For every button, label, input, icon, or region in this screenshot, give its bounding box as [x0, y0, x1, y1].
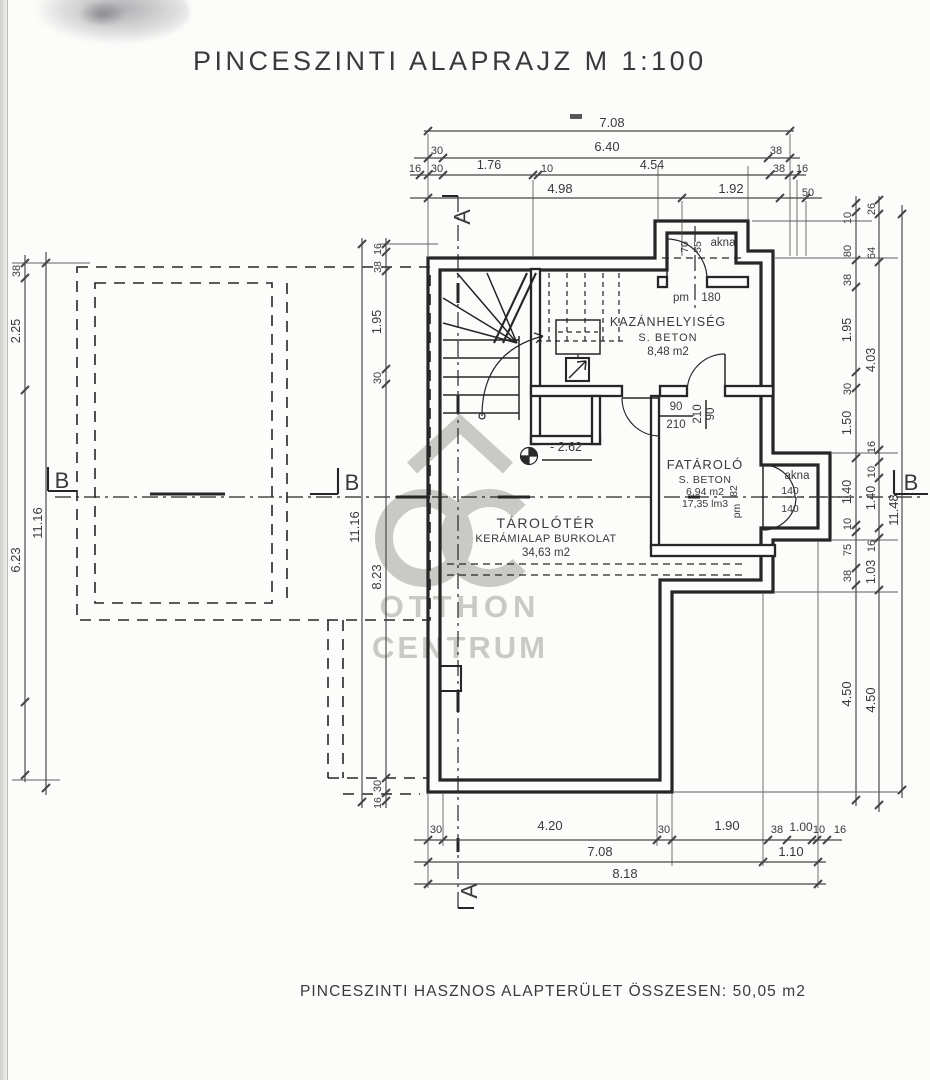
- dim-label: 6.23: [8, 547, 23, 572]
- dim-label: pm: [673, 292, 689, 304]
- dim-label: akna: [785, 470, 811, 482]
- dim-label: 4.50: [839, 681, 854, 706]
- dim-label: 50: [802, 187, 814, 199]
- room-kazanhelyiseg-area: 8,48 m2: [647, 346, 689, 358]
- room-kazanhelyiseg-name: KAZÁNHELYISÉG: [610, 314, 726, 329]
- dim-label: 75: [842, 544, 854, 556]
- dim-label: 30: [431, 163, 443, 175]
- dim-label: 8.18: [612, 866, 637, 881]
- dim-label: 90: [705, 408, 717, 421]
- dim-label: 1.40: [864, 486, 878, 510]
- dim-label: 38: [842, 274, 854, 286]
- section-mark-a-bottom: A: [456, 883, 482, 899]
- room-fatarolo-material: S. BETON: [679, 474, 732, 486]
- dim-label: 2.25: [9, 319, 23, 343]
- dim-label: 80: [842, 245, 854, 257]
- dim-label: 1.03: [864, 560, 878, 584]
- dim-label: 1.76: [477, 158, 501, 172]
- room-tarolter-area: 34,63 m2: [522, 547, 570, 559]
- dim-label: 82: [728, 485, 740, 497]
- dim-label: 10: [813, 824, 825, 836]
- dim-label: 16: [372, 243, 384, 255]
- dim-label: akna: [711, 237, 737, 249]
- dim-label: pm: [731, 503, 743, 518]
- overhead-dashed-outlines: [77, 267, 742, 794]
- boiler-equipment: [556, 320, 600, 381]
- room-fatarolo-name: FATÁROLÓ: [667, 457, 743, 472]
- dim-label: 7.08: [587, 844, 612, 859]
- section-marks: A A B B B: [48, 196, 928, 908]
- dim-label: 30: [372, 372, 384, 384]
- dim-label: 16: [796, 163, 808, 175]
- dim-label: 210: [666, 419, 685, 431]
- watermark-brand-top: OTTHON: [380, 589, 541, 624]
- dim-label: 4.54: [640, 158, 664, 172]
- dim-label: 64: [866, 247, 878, 259]
- dim-label: 4.98: [547, 181, 572, 196]
- dim-label: 8.23: [369, 564, 384, 589]
- dim-label: 38: [773, 163, 785, 175]
- dim-label: 70: [679, 241, 691, 253]
- watermark-brand-bottom: CENTRUM: [372, 630, 548, 665]
- scanned-floorplan-page: OTTHON CENTRUM: [0, 0, 930, 1080]
- dim-label: 140: [781, 503, 799, 515]
- dim-label: - 2.62: [550, 440, 582, 454]
- dim-label: 1.95: [370, 310, 384, 334]
- dim-label: 38: [771, 824, 783, 836]
- dimension-labels: 7.08306.403816301.76104.5438164.981.9250…: [8, 115, 901, 881]
- dim-label: 30: [842, 383, 854, 395]
- dim-label: 7.08: [599, 115, 624, 130]
- dim-label: 11.16: [347, 511, 362, 543]
- room-kazanhelyiseg-material: S. BETON: [638, 332, 697, 344]
- dim-label: 4.03: [864, 348, 878, 372]
- dim-label: 16: [866, 540, 878, 552]
- dim-label: 4.20: [537, 818, 562, 833]
- dim-label: 140: [781, 485, 799, 497]
- dim-label: 16: [372, 797, 384, 809]
- dim-label: 16: [834, 824, 846, 836]
- dim-label: 1.95: [840, 318, 854, 342]
- dim-label: 38: [770, 145, 782, 157]
- floor-plan-svg: OTTHON CENTRUM: [0, 0, 930, 1080]
- room-tarolter-material: KERÁMIALAP BURKOLAT: [475, 532, 616, 545]
- room-tarolter-name: TÁROLÓTÉR: [496, 515, 595, 531]
- dim-label: 30: [430, 824, 442, 836]
- dim-label: 11.48: [886, 494, 901, 526]
- dim-label: 38: [372, 261, 384, 273]
- dim-label: 6.40: [594, 139, 619, 154]
- section-mark-a-top: A: [449, 209, 475, 225]
- section-mark-b-inner: B: [345, 470, 360, 495]
- room-fatarolo-area: 6,94 m2: [686, 486, 724, 498]
- dim-label: 10: [842, 212, 854, 224]
- dim-label: 16: [866, 441, 878, 453]
- section-lines: [55, 196, 920, 910]
- dim-label: 1.50: [840, 411, 854, 435]
- dim-label: 38: [842, 570, 854, 582]
- section-mark-b-right: B: [904, 470, 919, 495]
- dim-label: 30: [431, 145, 443, 157]
- room-labels: KAZÁNHELYISÉG S. BETON 8,48 m2 FATÁROLÓ …: [475, 314, 743, 559]
- dim-label: 1.92: [718, 181, 743, 196]
- dim-label: 4.50: [863, 687, 878, 712]
- dim-label: 30: [372, 780, 384, 792]
- room-fatarolo-volume: 17,35 lm3: [682, 498, 728, 510]
- dim-label: 55: [692, 241, 704, 253]
- dim-label: 38: [11, 265, 23, 277]
- dim-label: 10: [842, 518, 854, 530]
- footer-total-area: PINCESZINTI HASZNOS ALAPTERÜLET ÖSSZESEN…: [300, 982, 806, 1000]
- dim-label: 30: [658, 824, 670, 836]
- dim-label: 1.10: [778, 844, 803, 859]
- dim-label: 1.90: [714, 818, 739, 833]
- dim-label: 26: [866, 203, 878, 215]
- section-mark-b-left: B: [55, 468, 70, 493]
- dim-label: 10: [541, 163, 553, 175]
- dim-label: 1.00: [789, 820, 813, 834]
- page-title: PINCESZINTI ALAPRAJZ M 1:100: [193, 46, 707, 76]
- dim-label: 180: [701, 292, 720, 304]
- dim-label: 16: [409, 163, 421, 175]
- dim-label: 90: [670, 401, 683, 413]
- dim-label: 210: [692, 404, 704, 423]
- dim-label: 1.40: [840, 480, 854, 504]
- dim-label: 11.16: [30, 507, 45, 539]
- dim-label: 10: [866, 466, 878, 478]
